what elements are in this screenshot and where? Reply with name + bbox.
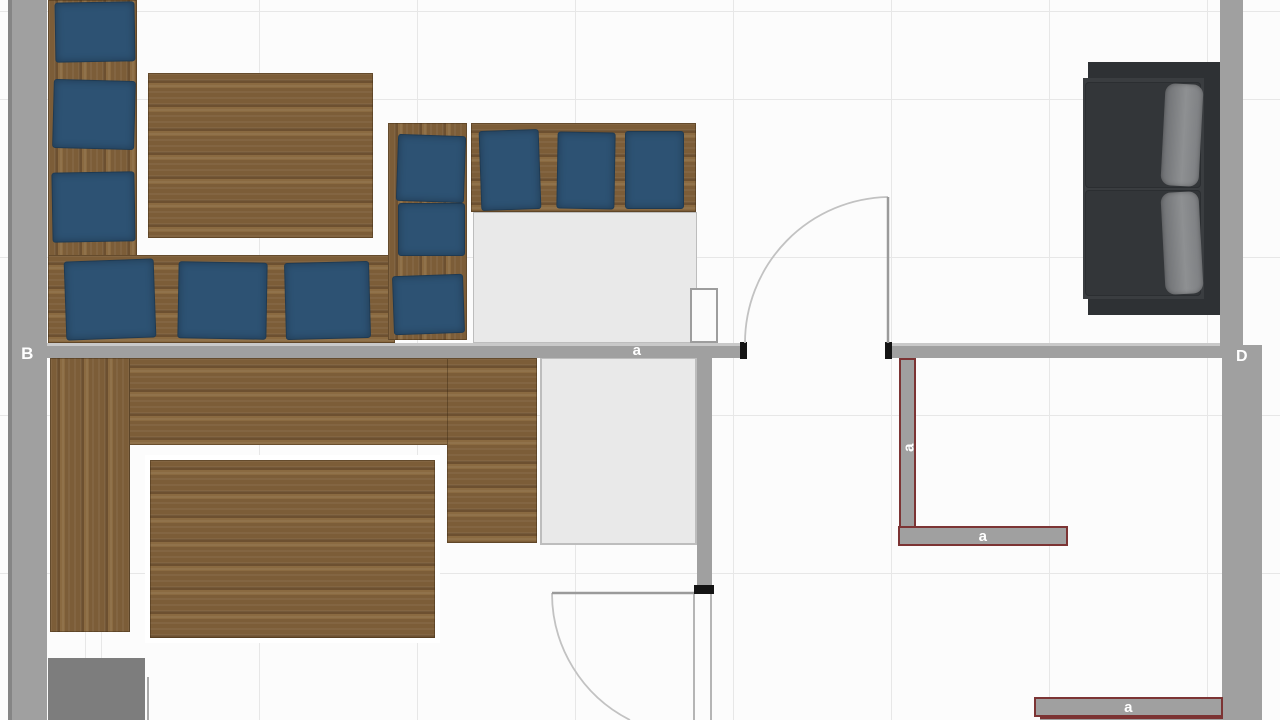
door-bottom-swing-arc[interactable] bbox=[552, 593, 630, 720]
floor-plan-canvas[interactable]: B a D a a a bbox=[0, 0, 1280, 720]
door-top-swing-arc[interactable] bbox=[745, 197, 888, 343]
doors-overlay bbox=[0, 0, 1280, 720]
